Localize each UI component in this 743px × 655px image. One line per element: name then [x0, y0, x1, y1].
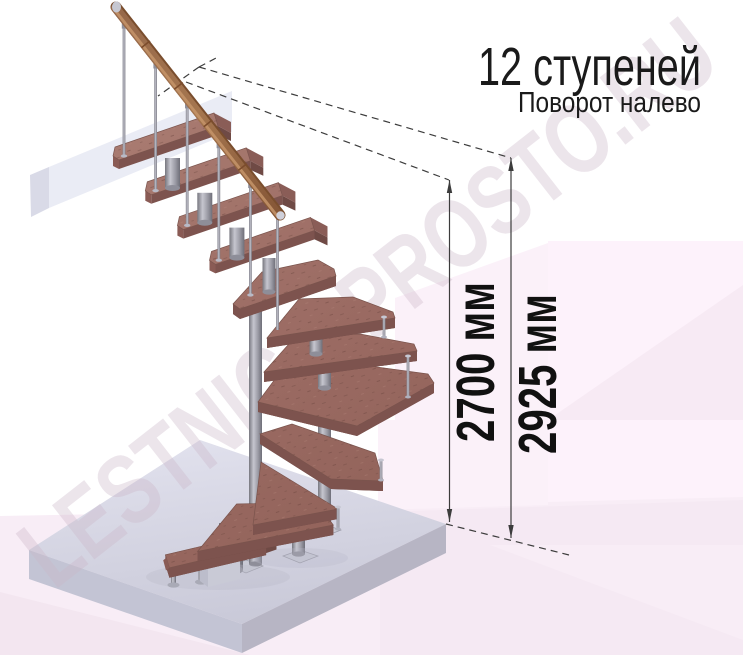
svg-text:Поворот налево: Поворот налево: [518, 87, 701, 119]
svg-text:2925 мм: 2925 мм: [508, 294, 568, 454]
svg-text:2700 мм: 2700 мм: [446, 282, 506, 442]
